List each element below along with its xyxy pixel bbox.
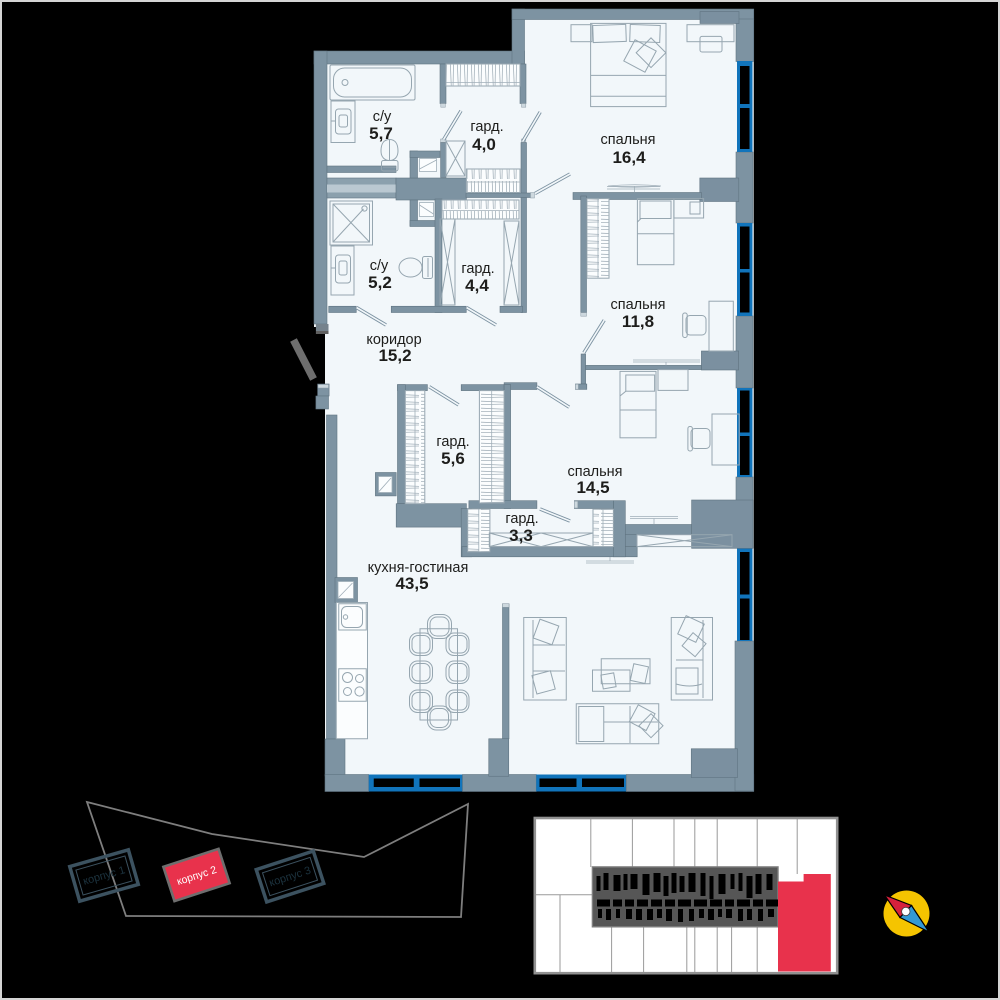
svg-text:гард.: гард. <box>505 511 538 527</box>
svg-text:гард.: гард. <box>436 434 469 450</box>
svg-text:с/у: с/у <box>370 258 389 274</box>
svg-text:с/у: с/у <box>373 109 392 125</box>
svg-text:спальня: спальня <box>610 297 665 313</box>
svg-text:3,3: 3,3 <box>509 526 533 545</box>
svg-text:11,8: 11,8 <box>622 312 654 331</box>
svg-text:14,5: 14,5 <box>576 478 609 497</box>
svg-text:спальня: спальня <box>600 132 655 148</box>
svg-text:4,0: 4,0 <box>472 135 496 154</box>
svg-text:5,7: 5,7 <box>369 124 393 143</box>
svg-text:43,5: 43,5 <box>395 574 428 593</box>
svg-text:15,2: 15,2 <box>378 346 411 365</box>
svg-text:5,6: 5,6 <box>441 449 465 468</box>
svg-text:16,4: 16,4 <box>612 148 646 167</box>
svg-text:гард.: гард. <box>470 119 503 135</box>
svg-text:гард.: гард. <box>461 261 494 277</box>
svg-text:4,4: 4,4 <box>465 276 489 295</box>
svg-text:5,2: 5,2 <box>368 273 392 292</box>
